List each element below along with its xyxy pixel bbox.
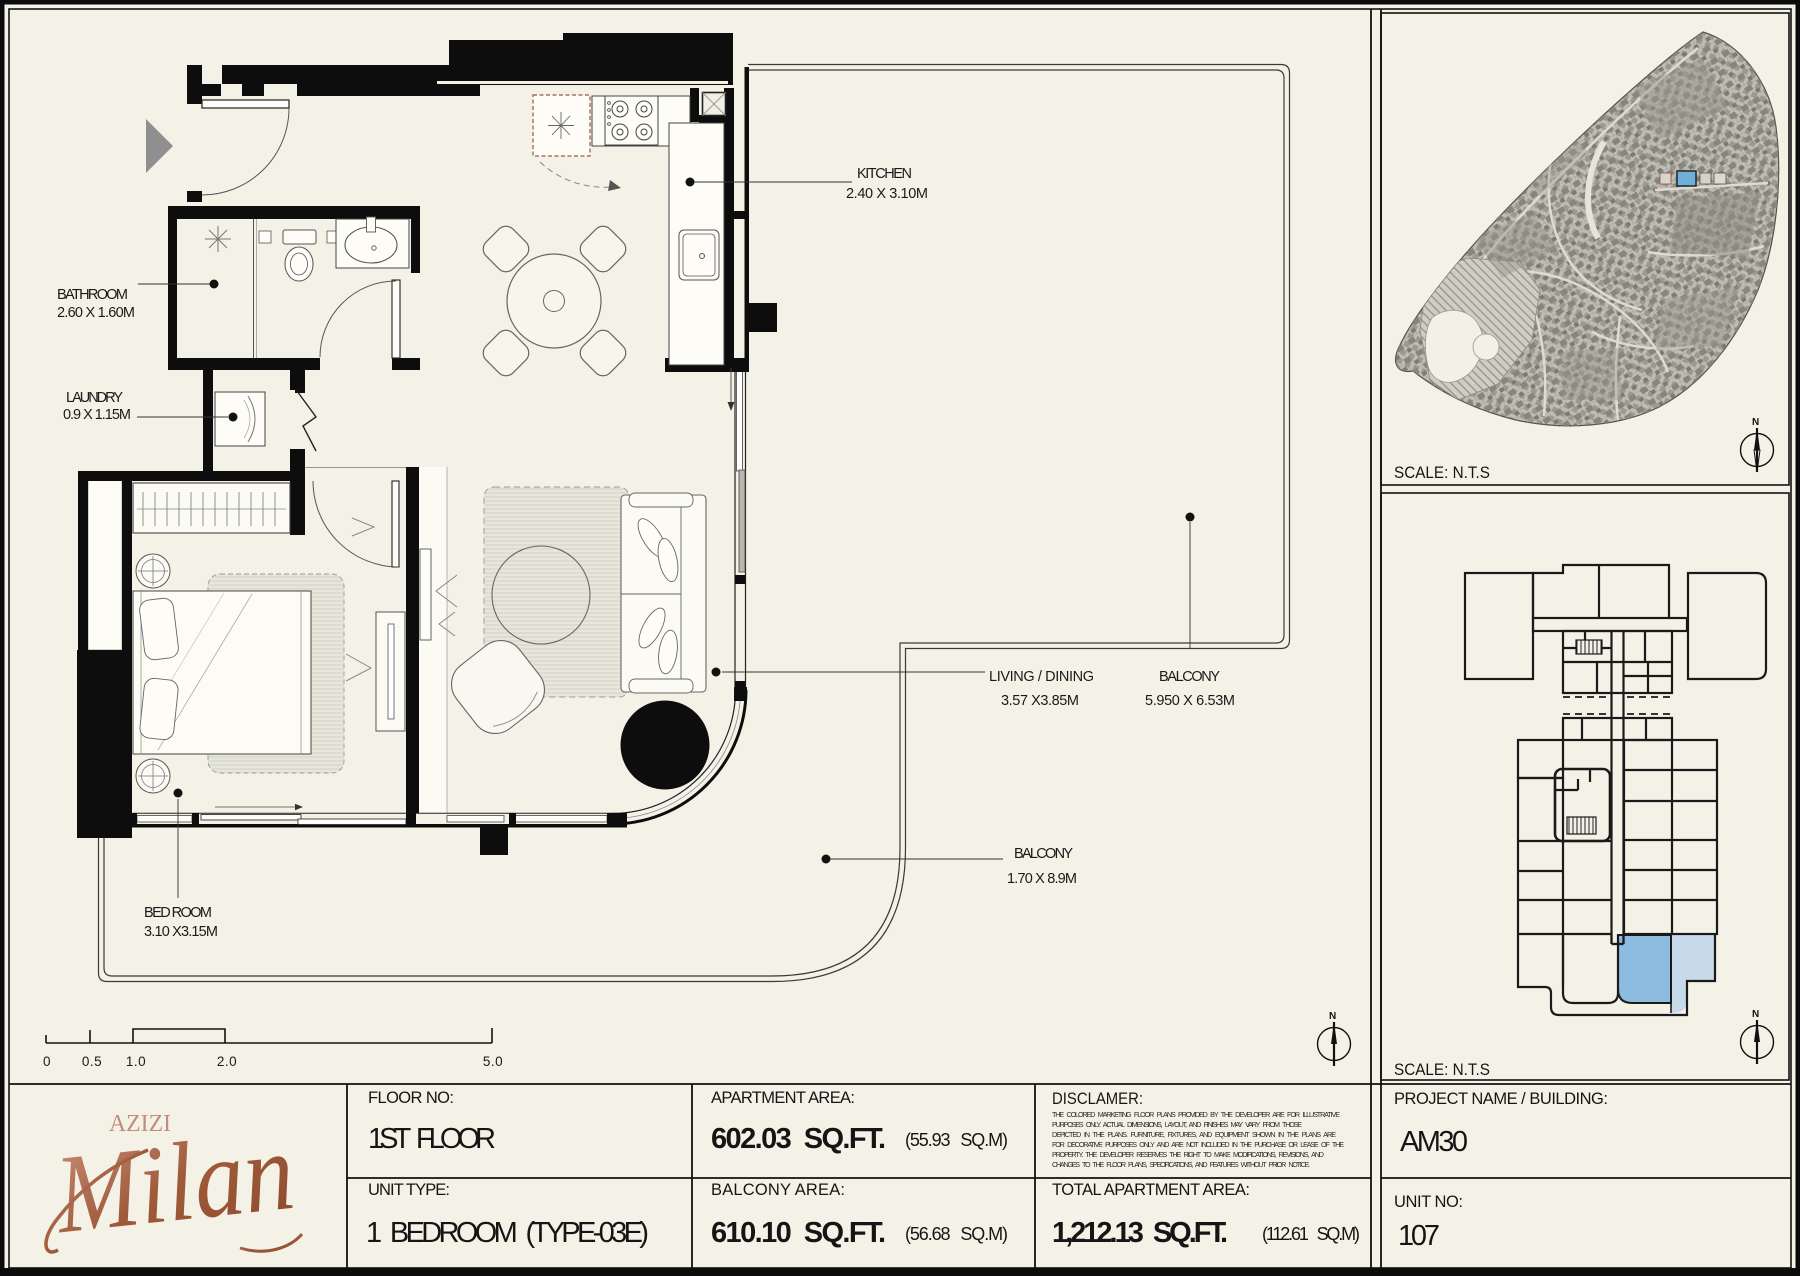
svg-text:THE COLORED MARKETING FLOOR PL: THE COLORED MARKETING FLOOR PLANS PROVID… <box>1052 1110 1340 1119</box>
svg-text:602.03 SQ.FT.: 602.03 SQ.FT. <box>711 1123 886 1155</box>
svg-text:UNIT NO:: UNIT NO: <box>1394 1193 1463 1211</box>
svg-text:N: N <box>1329 1011 1336 1022</box>
svg-text:BALCONY AREA:: BALCONY AREA: <box>711 1181 845 1199</box>
svg-text:SCALE: N.T.S: SCALE: N.T.S <box>1394 1060 1490 1079</box>
svg-text:5.0: 5.0 <box>483 1054 503 1069</box>
svg-text:PROPERTY. THE DEVELOPER RESERV: PROPERTY. THE DEVELOPER RESERVES THE RIG… <box>1052 1150 1324 1159</box>
svg-text:LIVING / DINING: LIVING / DINING <box>989 669 1094 685</box>
svg-text:BALCONY: BALCONY <box>1014 846 1073 862</box>
svg-text:1 BEDROOM (TYPE-03E): 1 BEDROOM (TYPE-03E) <box>366 1217 649 1249</box>
svg-text:SCALE: N.T.S: SCALE: N.T.S <box>1394 463 1490 482</box>
svg-text:(55.93 SQ.M): (55.93 SQ.M) <box>905 1130 1008 1150</box>
svg-text:FLOOR NO:: FLOOR NO: <box>368 1089 454 1107</box>
svg-text:2.40 X 3.10M: 2.40 X 3.10M <box>846 186 928 202</box>
svg-text:FOR DECORATIVE PURPOSES ONLY A: FOR DECORATIVE PURPOSES ONLY AND ARE NOT… <box>1052 1140 1344 1149</box>
svg-text:1,212.13 SQ.FT.: 1,212.13 SQ.FT. <box>1052 1217 1228 1249</box>
svg-text:APARTMENT AREA:: APARTMENT AREA: <box>711 1089 855 1107</box>
svg-text:1ST FLOOR: 1ST FLOOR <box>368 1123 496 1155</box>
svg-text:2.0: 2.0 <box>217 1054 237 1069</box>
svg-text:BATHROOM: BATHROOM <box>57 287 128 303</box>
svg-text:BED ROOM: BED ROOM <box>144 905 212 921</box>
svg-text:0.5: 0.5 <box>82 1054 102 1069</box>
svg-text:3.10 X3.15M: 3.10 X3.15M <box>144 924 218 940</box>
svg-text:LAUNDRY: LAUNDRY <box>66 390 123 406</box>
svg-text:CHANGES TO THE FLOOR PLANS, SP: CHANGES TO THE FLOOR PLANS, SPECIFICATIO… <box>1052 1160 1310 1169</box>
svg-text:3.57 X3.85M: 3.57 X3.85M <box>1001 693 1079 709</box>
svg-text:BALCONY: BALCONY <box>1159 669 1220 685</box>
svg-text:(56.68 SQ.M): (56.68 SQ.M) <box>905 1224 1008 1244</box>
svg-text:1.0: 1.0 <box>126 1054 146 1069</box>
svg-text:107: 107 <box>1398 1220 1440 1252</box>
svg-text:KITCHEN: KITCHEN <box>857 166 912 182</box>
svg-text:2.60 X 1.60M: 2.60 X 1.60M <box>57 305 135 321</box>
svg-text:Milan: Milan <box>48 1109 299 1257</box>
svg-text:(112.61 SQ.M): (112.61 SQ.M) <box>1262 1224 1360 1244</box>
svg-text:AM30: AM30 <box>1400 1126 1468 1158</box>
svg-text:PROJECT NAME / BUILDING:: PROJECT NAME / BUILDING: <box>1394 1090 1608 1108</box>
svg-text:1.70 X 8.9M: 1.70 X 8.9M <box>1007 871 1077 887</box>
svg-text:5.950 X 6.53M: 5.950 X 6.53M <box>1145 693 1235 709</box>
svg-text:0.9 X 1.15M: 0.9 X 1.15M <box>63 407 131 423</box>
svg-text:DISCLAMER:: DISCLAMER: <box>1052 1089 1143 1108</box>
svg-text:N: N <box>1752 1009 1759 1020</box>
svg-text:DEPICTED IN THE PLANS. FURNITU: DEPICTED IN THE PLANS. FURNITURE, FIXTUR… <box>1052 1130 1336 1139</box>
svg-text:PURPOSES ONLY. ACTUAL DIMENSIO: PURPOSES ONLY. ACTUAL DIMENSIONS, LAYOUT… <box>1052 1120 1302 1129</box>
svg-text:TOTAL APARTMENT AREA:: TOTAL APARTMENT AREA: <box>1052 1181 1250 1199</box>
svg-text:0: 0 <box>43 1054 51 1069</box>
svg-text:610.10 SQ.FT.: 610.10 SQ.FT. <box>711 1217 886 1249</box>
svg-text:UNIT TYPE:: UNIT TYPE: <box>368 1181 450 1199</box>
svg-text:N: N <box>1752 417 1759 428</box>
